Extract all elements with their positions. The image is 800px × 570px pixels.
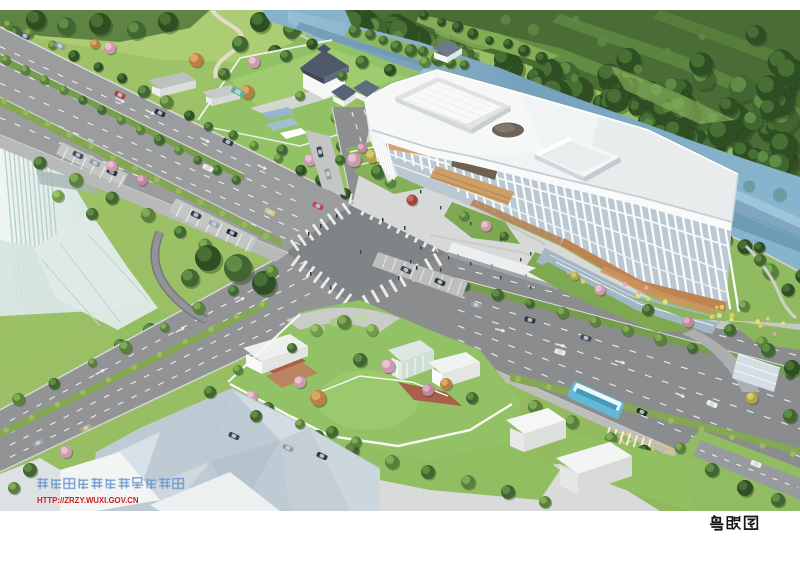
svg-text:HTTP://ZRZY.WUXI.GOV.CN: HTTP://ZRZY.WUXI.GOV.CN [37, 496, 139, 505]
